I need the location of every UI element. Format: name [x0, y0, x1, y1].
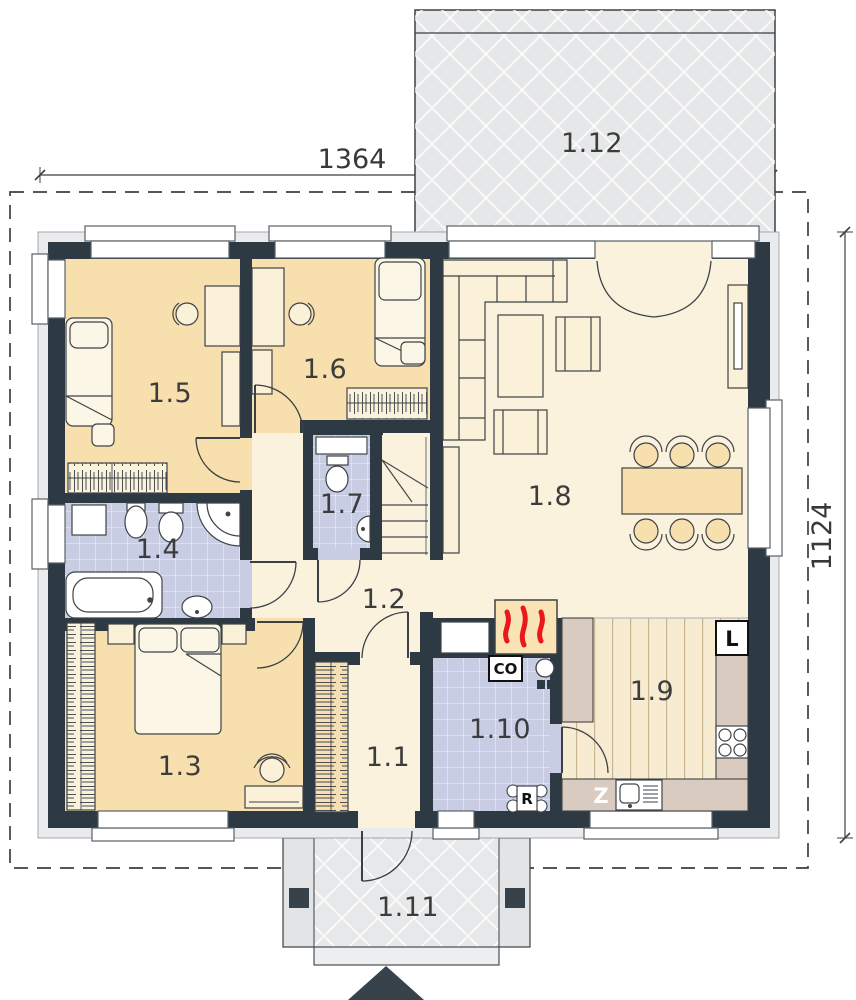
utility-box-1: [537, 680, 545, 689]
window-1-5: [91, 241, 229, 258]
door-gap-1-3: [255, 618, 303, 631]
floor-living-room: [443, 259, 748, 618]
room-label-1-9: 1.9: [630, 676, 674, 707]
desk-1-5: [205, 286, 240, 346]
counter-west: [562, 618, 593, 722]
window-living-east: [748, 408, 770, 548]
dining-chair-1: [634, 443, 658, 467]
wall-hall-1-1-right: [410, 652, 420, 665]
bed-foot-shelf-1-6: [401, 342, 425, 364]
dining-chair-3: [706, 443, 730, 467]
window-1-5-west: [48, 260, 65, 318]
bed-pillow-1-6: [379, 262, 421, 300]
wall-wc-south-left: [303, 548, 318, 560]
desk-1-6: [252, 268, 284, 346]
cabinet-east-slot: [734, 303, 742, 369]
wall-bathroom-east: [240, 503, 252, 560]
window-sill-utility: [433, 828, 479, 839]
wardrobe-1-6-hatch: [347, 388, 427, 419]
door-gap-bathroom: [240, 560, 252, 608]
water-heater: [536, 659, 554, 677]
wall-wc-west: [303, 425, 313, 560]
window-sill-living-north: [447, 226, 759, 241]
door-gap-wc: [318, 548, 360, 560]
wall-niche: [441, 622, 489, 653]
fridge-label: L: [725, 627, 738, 651]
wall-utility-kitchen-bottom: [550, 773, 562, 811]
dining-table: [622, 468, 742, 514]
shower-drain: [226, 512, 231, 517]
manifold-label: R: [521, 790, 533, 808]
window-utility: [438, 811, 474, 828]
bed-double-pillow-right: [181, 628, 219, 652]
room-label-1-1: 1.1: [366, 742, 410, 773]
wall-1-5-bathroom: [65, 493, 252, 503]
bed-pillow-1-5: [70, 322, 108, 348]
room-label-1-10: 1.10: [469, 714, 531, 745]
entrance-marker-triangle: [348, 966, 424, 1000]
dimension-right-label: 1124: [807, 502, 838, 571]
wall-1-3-1-1: [303, 618, 315, 811]
terrace: [415, 10, 775, 234]
door-gap-utility-kitchen: [550, 724, 562, 773]
sink-1-7-tap: [361, 527, 365, 531]
washing-machine: [72, 505, 106, 535]
dining-set: [622, 436, 742, 550]
sink-1-4: [182, 596, 212, 618]
window-1-6: [275, 241, 385, 258]
window-sill-kitchen: [584, 828, 718, 839]
coffee-table: [498, 315, 543, 397]
window-sill-1-6: [269, 226, 391, 241]
door-gap-entrance: [358, 811, 415, 828]
room-label-1-7: 1.7: [320, 489, 364, 520]
kitchen-sink-unit: [616, 780, 662, 810]
bed-foot-shelf-1-5: [92, 424, 114, 446]
window-1-3: [98, 811, 228, 828]
flame-icon-2: [522, 608, 525, 645]
window-sill-1-5: [85, 226, 235, 241]
terrace-paving-hatch: [415, 10, 775, 234]
window-kitchen: [590, 811, 712, 828]
dining-chair-2: [670, 443, 694, 467]
nightstand-left: [108, 624, 134, 644]
entry-hall-furniture: [315, 662, 348, 812]
room-label-1-11: 1.11: [377, 892, 439, 923]
window-living-north-left: [449, 241, 595, 258]
wall-stub-b: [240, 608, 252, 618]
chair-1-6: [289, 303, 311, 325]
dining-chair-5: [670, 519, 694, 543]
porch-column-right: [505, 888, 525, 908]
window-sill-1-5-west: [32, 254, 48, 324]
dimension-right: 1124: [807, 227, 853, 843]
room-label-1-8: 1.8: [528, 481, 572, 512]
door-gap-terrace: [595, 242, 712, 259]
armchair-bottom: [494, 410, 547, 454]
room-label-1-3: 1.3: [158, 751, 202, 782]
armchair-right: [556, 317, 600, 371]
wall-1-5-1-6: [240, 259, 252, 438]
door-gap-1-6: [252, 420, 300, 433]
sink-bowl: [620, 784, 639, 803]
room-label-1-5: 1.5: [148, 378, 192, 409]
door-gap-1-1: [360, 652, 410, 665]
shelf-1-5: [222, 352, 240, 426]
porch-column-left: [289, 888, 309, 908]
dimension-top-label: 1364: [318, 144, 387, 175]
door-gap-1-5: [240, 438, 252, 490]
closet-1-1-hatch: [315, 662, 348, 812]
wall-wc-stairs: [370, 425, 382, 550]
wall-1-1-utility: [420, 612, 433, 811]
dining-chair-4: [634, 519, 658, 543]
bed-double-pillow-left: [139, 628, 177, 652]
floor-plan-drawing: 1364 1124: [0, 0, 856, 1000]
chair-1-3: [260, 758, 284, 782]
wall-living-west: [430, 242, 443, 560]
sink-1-4-tap: [195, 610, 199, 614]
sink-counter-label: Z: [593, 784, 608, 808]
window-sill-1-3: [92, 828, 234, 841]
wall-wc-south-right: [360, 548, 382, 560]
counter-east: [716, 655, 748, 780]
nightstand-right: [222, 624, 246, 644]
boiler-co-label: CO: [494, 660, 518, 678]
bathtub: [66, 572, 162, 618]
wc-shelf: [316, 437, 367, 454]
bathtub-tap: [147, 597, 153, 603]
utility-box-2: [547, 680, 555, 689]
floor-plan-page: 1364 1124: [0, 0, 856, 1000]
room-label-1-12: 1.12: [561, 128, 623, 159]
toilet-cistern-1-7: [327, 456, 348, 465]
flame-icon-3: [540, 612, 543, 641]
room-label-1-6: 1.6: [303, 354, 347, 385]
window-bathroom: [48, 505, 65, 563]
window-sill-bathroom: [32, 499, 48, 569]
flame-icon-1: [506, 612, 509, 641]
chair-1-5: [176, 303, 198, 325]
window-living-north-right: [712, 241, 755, 258]
desk-1-3: [245, 786, 303, 808]
room-label-1-4: 1.4: [136, 534, 180, 565]
room-label-1-2: 1.2: [362, 584, 406, 615]
sideboard-west: [443, 447, 459, 553]
sink-tap: [628, 804, 632, 808]
dining-chair-6: [706, 519, 730, 543]
porch-step: [314, 947, 499, 965]
